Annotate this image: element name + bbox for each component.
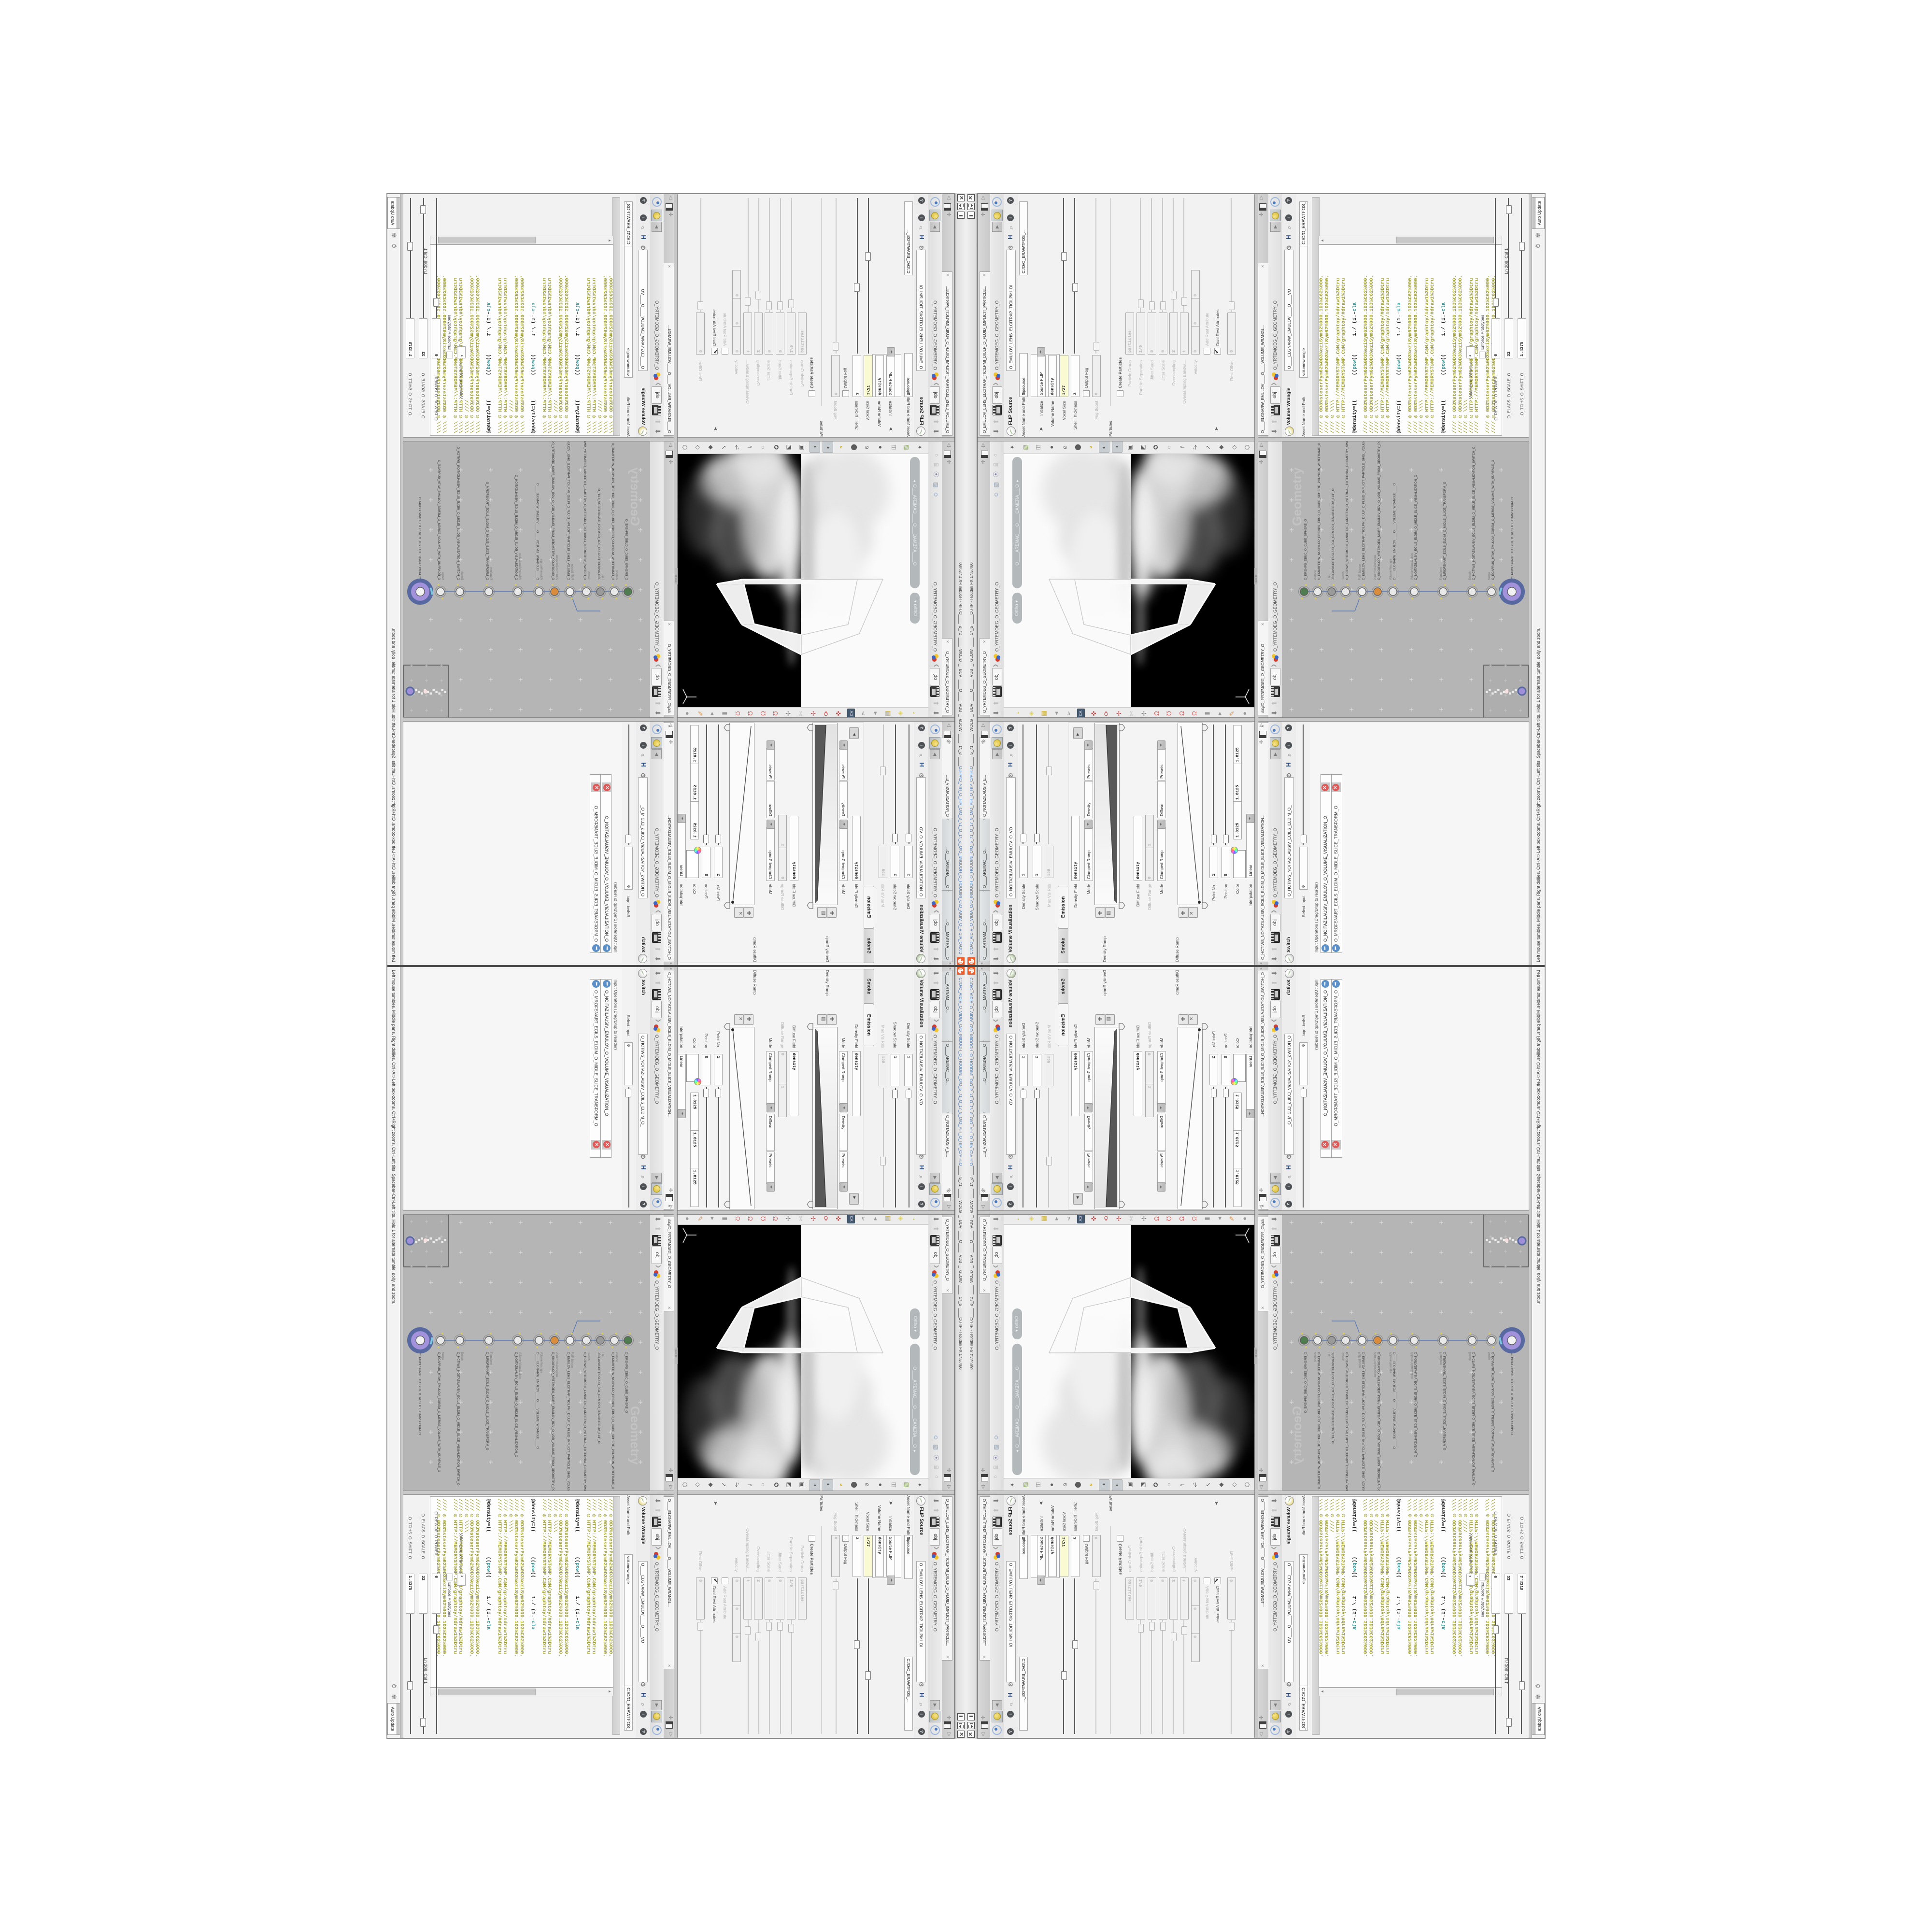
svg-text:Switch: Switch xyxy=(587,1352,590,1361)
svg-text:Switch: Switch xyxy=(460,1352,463,1361)
svg-text:O_HCTIWS_NOITAZILAUSIV_ECILS_E: O_HCTIWS_NOITAZILAUSIV_ECILS_ELDIM_O_MID… xyxy=(456,447,460,580)
svg-text:Geometry: Geometry xyxy=(1290,1406,1304,1465)
svg-text:O_HCTIWS_NOITAZILAUSIV_ECILS_E: O_HCTIWS_NOITAZILAUSIV_ECILS_ELDIM_O_MID… xyxy=(1472,1352,1476,1485)
svg-text:O_MROFSNART_ECILS_ELDIM_O_MIDL: O_MROFSNART_ECILS_ELDIM_O_MIDLE_SLICE_TR… xyxy=(1443,482,1447,580)
svg-text:JBO.AV03.PETS.5L5.O_5GL_GEM.P5: JBO.AV03.PETS.5L5.O_5GL_GEM.P53_O.5L0P3T… xyxy=(597,488,600,580)
svg-text:O_ECAFRUS_HTIW_EMULOV_EGREM_O_: O_ECAFRUS_HTIW_EMULOV_EGREM_O_MERGE_VOLU… xyxy=(437,460,440,580)
svg-text:O____ELGNARW_EMULOV____O____VO: O____ELGNARW_EMULOV____O____VOLUME_WRANG… xyxy=(536,483,539,580)
svg-text:O_EMULOV_LEHS_ELCITRAP_TICILPM: O_EMULOV_LEHS_ELCITRAP_TICILPMI_DIULF_O_… xyxy=(567,440,570,580)
svg-text:JBO.AV03.PETS.5L5.O_5GL_GEM.P5: JBO.AV03.PETS.5L5.O_5GL_GEM.P53_O.5L0P3T… xyxy=(1332,488,1335,580)
svg-text:O_MROFSNART_ECILS_ELDIM_O_MIDL: O_MROFSNART_ECILS_ELDIM_O_MIDLE_SLICE_TR… xyxy=(485,482,489,580)
svg-text:Switch: Switch xyxy=(460,571,463,580)
svg-text:O____ELGNARW_EMULOV____O____VO: O____ELGNARW_EMULOV____O____VOLUME_WRANG… xyxy=(536,1352,539,1449)
svg-text:VDB from Polygons: VDB from Polygons xyxy=(1374,1352,1377,1377)
svg-text:O_NOITAZILAUSIV_ECILS_ELDIM_O_: O_NOITAZILAUSIV_ECILS_ELDIM_O_MIDLE_SLIC… xyxy=(514,475,518,580)
svg-text:File: File xyxy=(601,1352,604,1357)
svg-text:O_EREHPS_EBUC_O_CUBE_SPHERE_O: O_EREHPS_EBUC_O_CUBE_SPHERE_O xyxy=(1304,1352,1307,1413)
svg-text:O_EMULOV_LEHS_ELCITRAP_TICILPM: O_EMULOV_LEHS_ELCITRAP_TICILPMI_DIULF_O_… xyxy=(1362,440,1365,580)
svg-text:O_NOITAZILAUSIV_ECILS_ELDIM_O_: O_NOITAZILAUSIV_ECILS_ELDIM_O_MIDLE_SLIC… xyxy=(514,1352,518,1457)
svg-text:O_EMULOV_LEHS_ELCITRAP_TICILPM: O_EMULOV_LEHS_ELCITRAP_TICILPMI_DIULF_O_… xyxy=(1362,1352,1365,1492)
svg-text:O_ECAFRUS_HTIW_EMULOV_EGREM_O_: O_ECAFRUS_HTIW_EMULOV_EGREM_O_MERGE_VOLU… xyxy=(437,1352,440,1472)
svg-text:Volume Wrangle: Volume Wrangle xyxy=(540,1352,542,1374)
svg-text:Merge: Merge xyxy=(441,571,444,580)
svg-text:Platonic: Platonic xyxy=(615,570,618,580)
svg-text:O_HCTIWS_YRTEMOEG_LANRETXE_LAN: O_HCTIWS_YRTEMOEG_LANRETXE_LANRETNI_O_IN… xyxy=(583,440,586,580)
svg-text:O_EMARFERIW_NOGYLOP_EREHPS_EBU: O_EMARFERIW_NOGYLOP_EREHPS_EBUC_O_CUBE_S… xyxy=(611,1352,614,1489)
svg-text:O_ECAFRUS_HTIW_EMULOV_EGREM_O_: O_ECAFRUS_HTIW_EMULOV_EGREM_O_MERGE_VOLU… xyxy=(1492,1352,1495,1472)
svg-text:O_EMARFERIW_NOGYLOP_EREHPS_EBU: O_EMARFERIW_NOGYLOP_EREHPS_EBUC_O_CUBE_S… xyxy=(1318,443,1321,580)
svg-text:O_SNOGYLOP_YRTEMOEG_MORF_EMULO: O_SNOGYLOP_YRTEMOEG_MORF_EMULOV_BDV_O_VD… xyxy=(1378,440,1381,580)
svg-text:Platonic: Platonic xyxy=(1314,1352,1317,1362)
svg-text:O_SNOGYLOP_YRTEMOEG_MORF_EMULO: O_SNOGYLOP_YRTEMOEG_MORF_EMULOV_BDV_O_VD… xyxy=(551,1352,554,1492)
svg-text:Merge: Merge xyxy=(1488,1352,1491,1361)
svg-text:O_EMULOV_LEHS_ELCITRAP_TICILPM: O_EMULOV_LEHS_ELCITRAP_TICILPMI_DIULF_O_… xyxy=(567,1352,570,1492)
svg-text:O____ELGNARW_EMULOV____O____VO: O____ELGNARW_EMULOV____O____VOLUME_WRANG… xyxy=(1393,1352,1396,1449)
svg-text:O_NOITAZILAUSIV_ECILS_ELDIM_O_: O_NOITAZILAUSIV_ECILS_ELDIM_O_MIDLE_SLIC… xyxy=(1414,475,1418,580)
svg-text:Geometry: Geometry xyxy=(1290,467,1304,526)
svg-text:O_MROFSNART_ECILS_ELDIM_O_MIDL: O_MROFSNART_ECILS_ELDIM_O_MIDLE_SLICE_TR… xyxy=(485,1352,489,1450)
svg-text:Platonic: Platonic xyxy=(615,1352,618,1362)
svg-text:O_SNOGYLOP_YRTEMOEG_MORF_EMULO: O_SNOGYLOP_YRTEMOEG_MORF_EMULOV_BDV_O_VD… xyxy=(1378,1352,1381,1492)
svg-text:O_HCTIWS_NOITAZILAUSIV_ECILS_E: O_HCTIWS_NOITAZILAUSIV_ECILS_ELDIM_O_MID… xyxy=(456,1352,460,1485)
svg-text:File: File xyxy=(1328,1352,1331,1357)
svg-text:FLIP Source: FLIP Source xyxy=(1359,564,1362,580)
svg-text:Transform: Transform xyxy=(489,1352,492,1365)
svg-text:Volume Wrangle: Volume Wrangle xyxy=(1390,558,1392,580)
svg-text:Switch: Switch xyxy=(1469,571,1472,580)
svg-text:O_HCTIWS_YRTEMOEG_LANRETXE_LAN: O_HCTIWS_YRTEMOEG_LANRETXE_LANRETNI_O_IN… xyxy=(1346,440,1349,580)
svg-text:Transform: Transform xyxy=(1440,1352,1443,1365)
svg-text:Switch: Switch xyxy=(587,571,590,580)
svg-text:O_NOITAZILAUSIV_ECILS_ELDIM_O_: O_NOITAZILAUSIV_ECILS_ELDIM_O_MIDLE_SLIC… xyxy=(1414,1352,1418,1457)
svg-text:O_SNOGYLOP_YRTEMOEG_MORF_EMULO: O_SNOGYLOP_YRTEMOEG_MORF_EMULOV_BDV_O_VD… xyxy=(551,440,554,580)
svg-text:Geometry: Geometry xyxy=(628,1406,642,1465)
svg-text:O_MROFSNART_TLUSER_O_RESULT_TR: O_MROFSNART_TLUSER_O_RESULT_TRANSFORM_O xyxy=(418,497,421,579)
svg-text:Switch: Switch xyxy=(1342,1352,1345,1361)
svg-text:O_MROFSNART_TLUSER_O_RESULT_TR: O_MROFSNART_TLUSER_O_RESULT_TRANSFORM_O xyxy=(418,1353,421,1435)
svg-text:O_HCTIWS_YRTEMOEG_LANRETXE_LAN: O_HCTIWS_YRTEMOEG_LANRETXE_LANRETNI_O_IN… xyxy=(1346,1352,1349,1492)
svg-text:Volume Wrangle: Volume Wrangle xyxy=(1390,1352,1392,1374)
svg-text:Volume Visualization: Volume Visualization xyxy=(1411,1352,1414,1378)
svg-text:FLIP Source: FLIP Source xyxy=(570,564,573,580)
svg-text:O_EREHPS_EBUC_O_CUBE_SPHERE_O: O_EREHPS_EBUC_O_CUBE_SPHERE_O xyxy=(1304,519,1307,580)
svg-text:JBO.AV03.PETS.5L5.O_5GL_GEM.P5: JBO.AV03.PETS.5L5.O_5GL_GEM.P53_O.5L0P3T… xyxy=(597,1352,600,1444)
svg-text:Volume Wrangle: Volume Wrangle xyxy=(540,558,542,580)
svg-text:FLIP Source: FLIP Source xyxy=(1359,1352,1362,1368)
svg-text:O_EMARFERIW_NOGYLOP_EREHPS_EBU: O_EMARFERIW_NOGYLOP_EREHPS_EBUC_O_CUBE_S… xyxy=(1318,1352,1321,1489)
svg-text:O_MROFSNART_TLUSER_O_RESULT_TR: O_MROFSNART_TLUSER_O_RESULT_TRANSFORM_O xyxy=(1511,497,1514,579)
svg-text:O_HCTIWS_YRTEMOEG_LANRETXE_LAN: O_HCTIWS_YRTEMOEG_LANRETXE_LANRETNI_O_IN… xyxy=(583,1352,586,1492)
svg-text:FLIP Source: FLIP Source xyxy=(570,1352,573,1368)
svg-text:O_ECAFRUS_HTIW_EMULOV_EGREM_O_: O_ECAFRUS_HTIW_EMULOV_EGREM_O_MERGE_VOLU… xyxy=(1492,460,1495,580)
svg-text:O_EREHPS_EBUC_O_CUBE_SPHERE_O: O_EREHPS_EBUC_O_CUBE_SPHERE_O xyxy=(625,519,628,580)
svg-text:VDB from Polygons: VDB from Polygons xyxy=(555,555,558,580)
svg-text:O_MROFSNART_TLUSER_O_RESULT_TR: O_MROFSNART_TLUSER_O_RESULT_TRANSFORM_O xyxy=(1511,1353,1514,1435)
svg-text:O_HCTIWS_NOITAZILAUSIV_ECILS_E: O_HCTIWS_NOITAZILAUSIV_ECILS_ELDIM_O_MID… xyxy=(1472,447,1476,580)
svg-text:Geometry: Geometry xyxy=(628,467,642,526)
svg-text:VDB from Polygons: VDB from Polygons xyxy=(1374,555,1377,580)
svg-text:Merge: Merge xyxy=(1488,571,1491,580)
svg-text:O____ELGNARW_EMULOV____O____VO: O____ELGNARW_EMULOV____O____VOLUME_WRANG… xyxy=(1393,483,1396,580)
svg-text:Switch: Switch xyxy=(1342,571,1345,580)
svg-text:File: File xyxy=(1328,575,1331,580)
svg-text:Platonic: Platonic xyxy=(1314,570,1317,580)
svg-text:O_EMARFERIW_NOGYLOP_EREHPS_EBU: O_EMARFERIW_NOGYLOP_EREHPS_EBUC_O_CUBE_S… xyxy=(611,443,614,580)
svg-text:Volume Visualization: Volume Visualization xyxy=(1411,554,1414,580)
svg-text:JBO.AV03.PETS.5L5.O_5GL_GEM.P5: JBO.AV03.PETS.5L5.O_5GL_GEM.P53_O.5L0P3T… xyxy=(1332,1352,1335,1444)
svg-text:Merge: Merge xyxy=(441,1352,444,1361)
svg-text:Volume Visualization: Volume Visualization xyxy=(518,1352,521,1378)
svg-text:Volume Visualization: Volume Visualization xyxy=(518,554,521,580)
svg-text:Transform: Transform xyxy=(489,567,492,580)
svg-text:O_MROFSNART_ECILS_ELDIM_O_MIDL: O_MROFSNART_ECILS_ELDIM_O_MIDLE_SLICE_TR… xyxy=(1443,1352,1447,1450)
svg-text:File: File xyxy=(601,575,604,580)
svg-text:O_EREHPS_EBUC_O_CUBE_SPHERE_O: O_EREHPS_EBUC_O_CUBE_SPHERE_O xyxy=(625,1352,628,1413)
svg-text:Switch: Switch xyxy=(1469,1352,1472,1361)
svg-text:Transform: Transform xyxy=(1440,567,1443,580)
svg-text:VDB from Polygons: VDB from Polygons xyxy=(555,1352,558,1377)
